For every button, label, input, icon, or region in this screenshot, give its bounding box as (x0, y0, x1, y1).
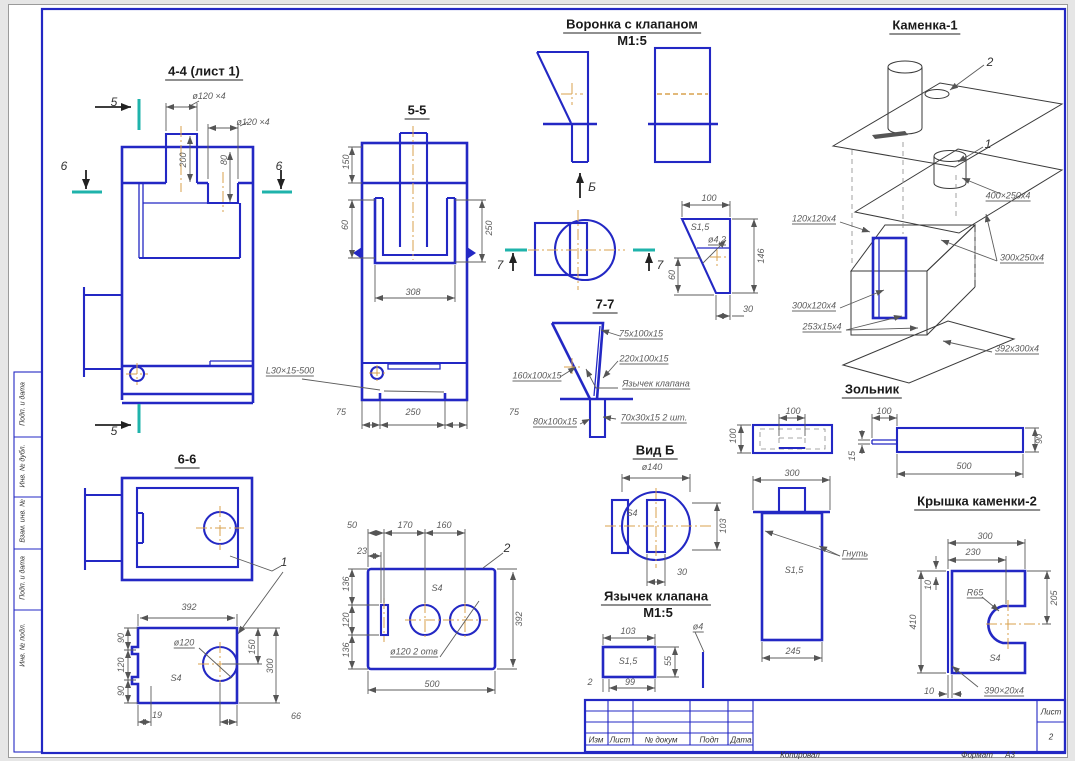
mark-7-left: 7 (497, 258, 504, 272)
lead-ya-d4: ø4 (693, 622, 704, 633)
dim-pan-245: 245 (785, 646, 800, 656)
lead-77-75x100: 75х100х15 (619, 329, 663, 340)
dim-p2-50: 50 (347, 520, 357, 530)
dim-55-75-left: 75 (336, 407, 346, 417)
lead-77-80x100: 80х100х15 (533, 417, 577, 428)
dim-tr-146: 146 (756, 248, 766, 263)
lead-55-angle: L30×15-500 (266, 366, 314, 377)
lead-kr-r65: R65 (967, 588, 984, 599)
dim-55-250-bottom: 250 (405, 407, 420, 417)
dim-44-d120x4-top: ø120 ×4 (192, 91, 225, 101)
dim-55-250: 250 (484, 220, 494, 235)
lead-kr-390x20: 390×20х4 (984, 686, 1024, 697)
mark-5-bottom: 5 (111, 424, 118, 438)
tb-col-podp: Подп (699, 736, 718, 745)
lead-k1-392x300: 392х300х4 (995, 344, 1039, 355)
title-voronka-scale: М1:5 (614, 33, 650, 49)
mark-part-2-kamenka: 2 (987, 55, 994, 69)
drawing-canvas: 4-4 (лист 1)5-56-67-7Воронка с клапаномМ… (0, 0, 1075, 761)
lead-p1-d120: ø120 (174, 638, 195, 649)
strip-podp-i-data-1: Подп. и дата (20, 382, 27, 426)
dim-tr-30: 30 (743, 304, 753, 314)
dim-p2-392: 392 (514, 611, 524, 626)
tb-list-header: Лист (1041, 708, 1062, 717)
tb-col-izm: Изм (589, 736, 604, 745)
dim-vb-s4: S4 (626, 508, 637, 518)
title-vid-b: Вид Б (633, 443, 678, 460)
dim-ya-55: 55 (663, 656, 673, 666)
lead-k1-120x120: 120х120х4 (792, 214, 836, 225)
dim-kr-410: 410 (908, 614, 918, 629)
title-section-4-4: 4-4 (лист 1) (165, 64, 243, 81)
strip-inv-n-podl: Инв. № подл. (20, 623, 27, 666)
dim-p2-136-top: 136 (341, 576, 351, 591)
dim-vb-30: 30 (677, 567, 687, 577)
title-zolnik: Зольник (842, 382, 902, 399)
dim-z-100-handle: 100 (876, 406, 891, 416)
dim-kr-300: 300 (977, 531, 992, 541)
dim-p2-170: 170 (397, 520, 412, 530)
lead-77-tongue: Язычек клапана (622, 379, 690, 390)
dim-ya-2: 2 (587, 677, 592, 687)
dim-44-80: 80 (219, 155, 229, 165)
lead-k1-300x250: 300х250х4 (1000, 253, 1044, 264)
title-section-5-5: 5-5 (405, 103, 430, 120)
strip-inv-n-dubl: Инв. № дубл. (20, 444, 27, 487)
mark-part-1-leader: 1 (281, 555, 288, 569)
lead-k1-300x120: 300х120х4 (792, 301, 836, 312)
title-voronka: Воронка с клапаном (563, 17, 701, 34)
dim-55-150: 150 (341, 154, 351, 169)
lead-k1-253x15: 253х15х4 (802, 322, 841, 333)
dim-tr-60: 60 (667, 270, 677, 280)
mark-part-1-kamenka: 1 (985, 137, 992, 151)
lead-k1-400x250: 400×250х4 (986, 191, 1031, 202)
lead-77-220x100: 220х100х15 (619, 354, 668, 365)
dim-55-60: 60 (340, 220, 350, 230)
dim-kr-10-bottom: 10 (924, 686, 934, 696)
dim-z-500: 500 (956, 461, 971, 471)
dim-p2-120: 120 (341, 612, 351, 627)
title-kamenka-1: Каменка-1 (889, 18, 960, 35)
tb-sheet-number: 2 (1049, 733, 1053, 742)
lead-77-70x30: 70х30х15 2 шт. (621, 413, 687, 424)
strip-podp-i-data-2: Подп. и дата (20, 556, 27, 600)
dim-z-15: 15 (847, 451, 857, 461)
title-kryshka-kamenki-2: Крышка каменки-2 (914, 494, 1040, 511)
title-section-7-7: 7-7 (593, 297, 618, 314)
dim-p1-19: 19 (152, 710, 162, 720)
dim-tr-100: 100 (701, 193, 716, 203)
dim-p1-90-top: 90 (116, 633, 126, 643)
dim-ya-103: 103 (620, 626, 635, 636)
dim-kr-205: 205 (1049, 590, 1059, 605)
lead-77-160x100: 160х100х15 (512, 371, 561, 382)
strip-vzam-inv-n: Взам. инв. № (20, 499, 27, 542)
dim-ya-s15: S1,5 (619, 656, 638, 666)
tb-kopiroval: Копировал (780, 751, 820, 760)
dim-p2-136-bottom: 136 (341, 642, 351, 657)
dim-p1-66: 66 (291, 711, 301, 721)
dim-p1-120: 120 (116, 657, 126, 672)
lead-p2-d120-2otv: ø120 2 отв (390, 647, 438, 658)
title-yazychek-scale: М1:5 (640, 605, 676, 621)
dim-55-75-right: 75 (509, 407, 519, 417)
mark-view-b-arrow: Б (588, 180, 596, 194)
dim-z-100-slot: 100 (785, 406, 800, 416)
dim-p1-s4: S4 (170, 673, 181, 683)
dim-55-308: 308 (405, 287, 420, 297)
dim-z-100-left: 100 (728, 428, 738, 443)
title-section-6-6: 6-6 (175, 452, 200, 469)
dim-p1-150: 150 (247, 639, 257, 654)
mark-7-right: 7 (657, 258, 664, 272)
dim-44-200: 200 (178, 152, 188, 167)
dim-vb-d140: ø140 (642, 462, 663, 472)
dim-p2-23: 23 (357, 546, 367, 556)
tb-col-list: Лист (610, 736, 631, 745)
dim-p1-392: 392 (181, 602, 196, 612)
lead-pan-gnut: Гнуть (842, 549, 868, 560)
tb-format-value: А3 (1005, 751, 1015, 760)
mark-5-top: 5 (111, 95, 118, 109)
dim-vb-103: 103 (718, 518, 728, 533)
tb-col-ndokum: № докум (644, 736, 677, 745)
drawing-sheet: 4-4 (лист 1)5-56-67-7Воронка с клапаномМ… (0, 0, 1075, 761)
dim-p2-160: 160 (436, 520, 451, 530)
dim-pan-300: 300 (784, 468, 799, 478)
dim-tr-s15: S1,5 (691, 222, 710, 232)
dim-p2-500: 500 (424, 679, 439, 689)
dim-kr-s4: S4 (989, 653, 1000, 663)
dim-p1-90-bottom: 90 (116, 686, 126, 696)
mark-6-left: 6 (61, 159, 68, 173)
dim-ya-99: 99 (625, 677, 635, 687)
dim-z-90: 90 (1034, 434, 1044, 444)
lead-tr-d4-2: ø4,2 (708, 235, 726, 246)
tb-col-data: Дата (730, 736, 751, 745)
dim-kr-10-top: 10 (923, 580, 933, 590)
dim-44-d120x4-right: ø120 ×4 (236, 117, 269, 127)
mark-part-2-plate: 2 (504, 541, 511, 555)
title-yazychek: Язычек клапана (601, 589, 711, 606)
tb-format-label: Формат (961, 751, 993, 760)
dim-p2-s4: S4 (431, 583, 442, 593)
dim-kr-230: 230 (965, 547, 980, 557)
dim-pan-s15: S1,5 (785, 565, 804, 575)
mark-6-right: 6 (276, 159, 283, 173)
dim-p1-300: 300 (265, 658, 275, 673)
